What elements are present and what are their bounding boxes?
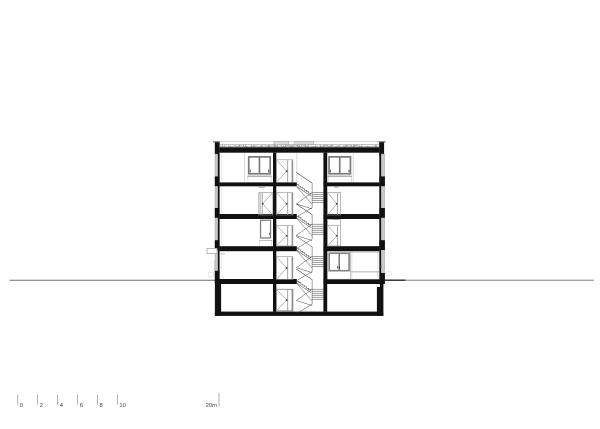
svg-text:8: 8: [100, 403, 103, 409]
svg-text:20m: 20m: [206, 403, 217, 409]
svg-text:2: 2: [40, 403, 43, 409]
svg-text:0: 0: [20, 403, 23, 409]
svg-text:10: 10: [119, 403, 125, 409]
svg-text:6: 6: [80, 403, 83, 409]
